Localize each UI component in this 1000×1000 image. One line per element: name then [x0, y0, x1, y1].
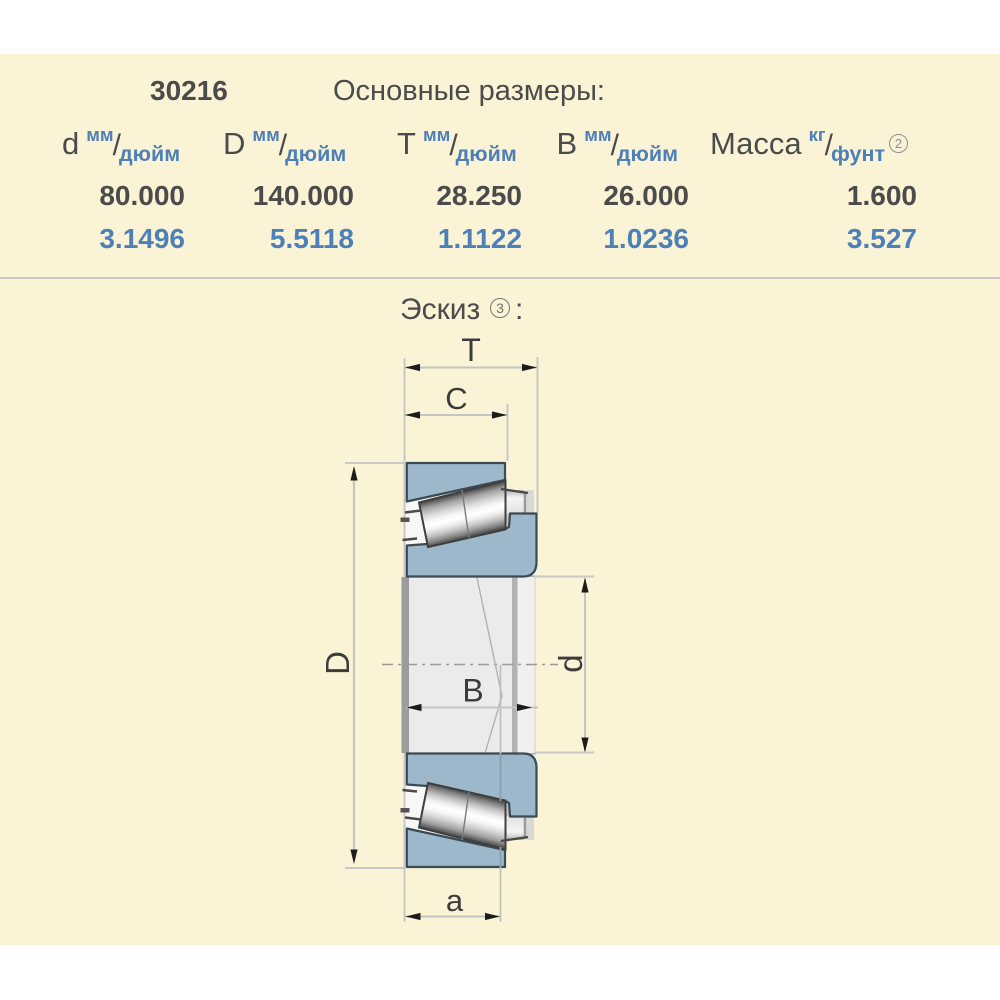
- svg-text:d: d: [552, 654, 589, 672]
- svg-text:T: T: [461, 332, 481, 368]
- svg-text:B: B: [462, 673, 483, 709]
- svg-text:a: a: [446, 883, 464, 918]
- svg-text:C: C: [445, 381, 467, 416]
- svg-text:D: D: [319, 651, 356, 675]
